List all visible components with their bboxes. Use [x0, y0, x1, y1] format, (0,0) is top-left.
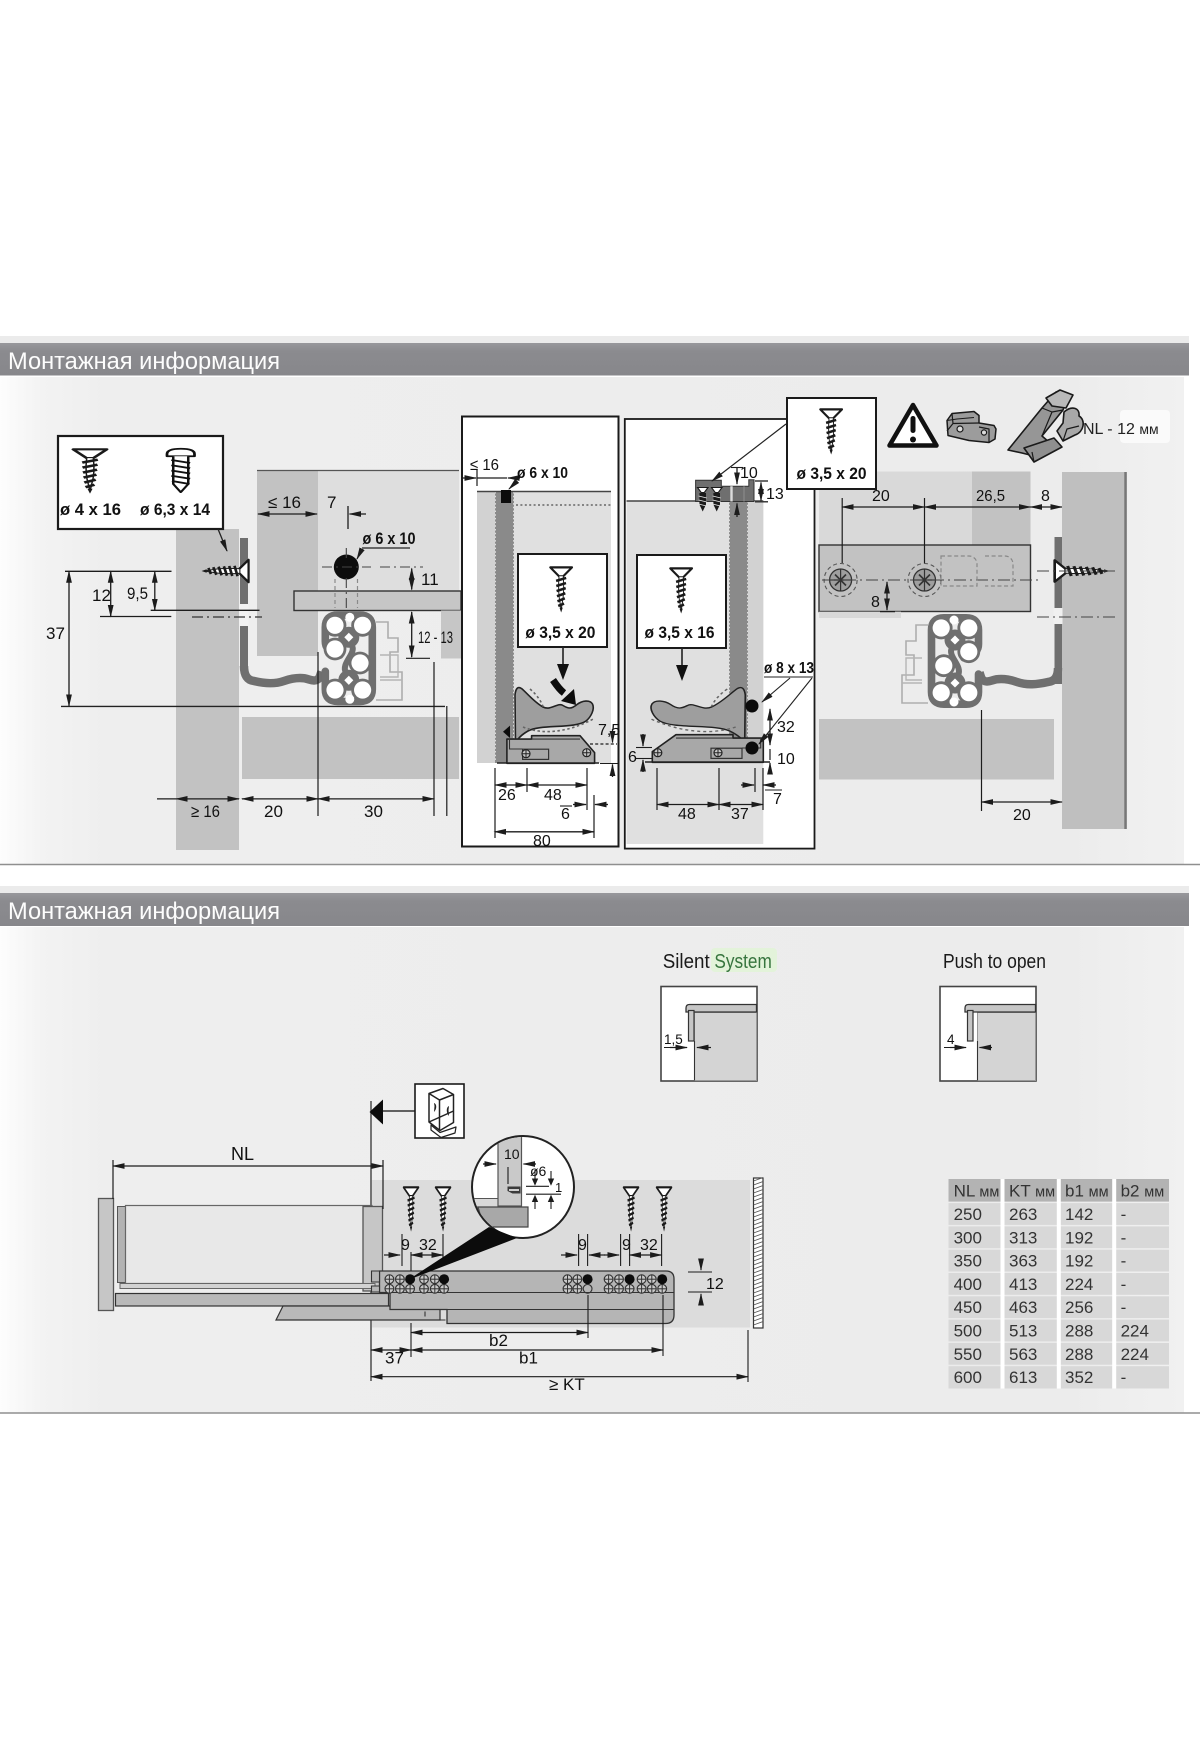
- svg-text:20: 20: [1013, 807, 1031, 824]
- svg-text:192: 192: [1065, 1252, 1093, 1271]
- svg-text:ø 3,5 x 20: ø 3,5 x 20: [525, 623, 595, 642]
- svg-text:Монтажная информация: Монтажная информация: [8, 348, 280, 375]
- svg-text:9: 9: [622, 1237, 631, 1254]
- svg-text:10: 10: [504, 1146, 520, 1162]
- svg-text:142: 142: [1065, 1205, 1093, 1224]
- svg-text:6: 6: [561, 806, 570, 823]
- svg-text:Push to open: Push to open: [943, 951, 1046, 973]
- svg-text:563: 563: [1009, 1345, 1037, 1364]
- svg-text:463: 463: [1009, 1298, 1037, 1317]
- svg-text:NL мм: NL мм: [954, 1182, 1000, 1201]
- svg-text:8: 8: [871, 594, 880, 611]
- svg-text:513: 513: [1009, 1322, 1037, 1341]
- svg-text:6: 6: [628, 749, 637, 766]
- svg-text:-: -: [1121, 1275, 1127, 1294]
- svg-text:48: 48: [678, 806, 696, 823]
- svg-text:NL - 12 мм: NL - 12 мм: [1083, 421, 1159, 438]
- svg-text:b1 мм: b1 мм: [1065, 1182, 1109, 1201]
- svg-text:80: 80: [533, 833, 551, 850]
- svg-text:600: 600: [954, 1368, 982, 1387]
- svg-text:ø 8 x 13: ø 8 x 13: [764, 660, 814, 677]
- svg-text:20: 20: [264, 802, 283, 821]
- svg-text:32: 32: [777, 719, 795, 736]
- svg-text:313: 313: [1009, 1228, 1037, 1247]
- svg-text:b2 мм: b2 мм: [1121, 1182, 1165, 1201]
- svg-text:8: 8: [1041, 488, 1050, 505]
- svg-text:32: 32: [419, 1237, 437, 1254]
- svg-text:≤ 16: ≤ 16: [268, 493, 301, 512]
- svg-text:7,5: 7,5: [598, 722, 620, 739]
- svg-text:613: 613: [1009, 1368, 1037, 1387]
- svg-text:7: 7: [773, 791, 782, 808]
- svg-text:-: -: [1121, 1228, 1127, 1247]
- svg-text:400: 400: [954, 1275, 982, 1294]
- svg-text:192: 192: [1065, 1228, 1093, 1247]
- svg-text:-: -: [1121, 1368, 1127, 1387]
- svg-text:-: -: [1121, 1252, 1127, 1271]
- svg-text:Монтажная информация: Монтажная информация: [8, 898, 280, 925]
- svg-text:7: 7: [327, 493, 336, 512]
- svg-text:1: 1: [555, 1180, 562, 1195]
- svg-text:413: 413: [1009, 1275, 1037, 1294]
- svg-text:300: 300: [954, 1228, 982, 1247]
- svg-text:9: 9: [401, 1237, 410, 1254]
- svg-text:9: 9: [578, 1237, 587, 1254]
- svg-text:256: 256: [1065, 1298, 1093, 1317]
- svg-text:352: 352: [1065, 1368, 1093, 1387]
- svg-text:Silent: Silent: [663, 951, 710, 973]
- svg-text:500: 500: [954, 1322, 982, 1341]
- svg-text:20: 20: [872, 488, 890, 505]
- svg-text:224: 224: [1121, 1322, 1149, 1341]
- svg-text:37: 37: [731, 806, 749, 823]
- svg-text:12: 12: [706, 1276, 724, 1293]
- svg-text:-: -: [1121, 1205, 1127, 1224]
- svg-text:11: 11: [421, 570, 439, 589]
- svg-text:NL: NL: [231, 1144, 254, 1164]
- svg-text:12: 12: [92, 586, 111, 605]
- svg-text:32: 32: [640, 1237, 658, 1254]
- svg-text:37: 37: [385, 1349, 404, 1368]
- svg-text:224: 224: [1121, 1345, 1149, 1364]
- svg-text:26: 26: [498, 787, 516, 804]
- svg-text:48: 48: [544, 787, 562, 804]
- svg-text:363: 363: [1009, 1252, 1037, 1271]
- svg-text:ø 3,5 x 20: ø 3,5 x 20: [797, 464, 867, 483]
- svg-text:224: 224: [1065, 1275, 1093, 1294]
- svg-text:ø6: ø6: [530, 1163, 547, 1179]
- svg-text:ø 6 x 10: ø 6 x 10: [517, 465, 568, 482]
- svg-text:KT мм: KT мм: [1009, 1182, 1055, 1201]
- svg-text:1,5: 1,5: [664, 1032, 683, 1047]
- svg-text:9,5: 9,5: [127, 584, 148, 603]
- svg-text:26,5: 26,5: [976, 488, 1005, 505]
- svg-text:263: 263: [1009, 1205, 1037, 1224]
- svg-text:b2: b2: [489, 1331, 508, 1350]
- svg-text:System: System: [714, 951, 771, 973]
- svg-text:ø 6,3 x 14: ø 6,3 x 14: [140, 500, 210, 519]
- svg-text:ø 6 x 10: ø 6 x 10: [363, 529, 416, 548]
- svg-text:30: 30: [364, 802, 383, 821]
- svg-text:-: -: [1121, 1298, 1127, 1317]
- svg-text:250: 250: [954, 1205, 982, 1224]
- svg-text:10: 10: [777, 751, 795, 768]
- svg-text:13: 13: [766, 486, 784, 503]
- svg-text:288: 288: [1065, 1322, 1093, 1341]
- svg-text:288: 288: [1065, 1345, 1093, 1364]
- svg-text:ø 4 x 16: ø 4 x 16: [60, 500, 121, 519]
- svg-text:550: 550: [954, 1345, 982, 1364]
- svg-text:ø 3,5 x 16: ø 3,5 x 16: [645, 623, 715, 642]
- svg-text:4: 4: [947, 1032, 955, 1047]
- svg-text:450: 450: [954, 1298, 982, 1317]
- svg-text:37: 37: [46, 624, 65, 643]
- svg-text:b1: b1: [519, 1349, 538, 1368]
- svg-text:≤ 16: ≤ 16: [470, 457, 499, 474]
- svg-text:≥ KT: ≥ KT: [549, 1375, 585, 1394]
- svg-text:≥ 16: ≥ 16: [191, 802, 220, 821]
- svg-text:12 - 13: 12 - 13: [418, 628, 453, 647]
- svg-text:350: 350: [954, 1252, 982, 1271]
